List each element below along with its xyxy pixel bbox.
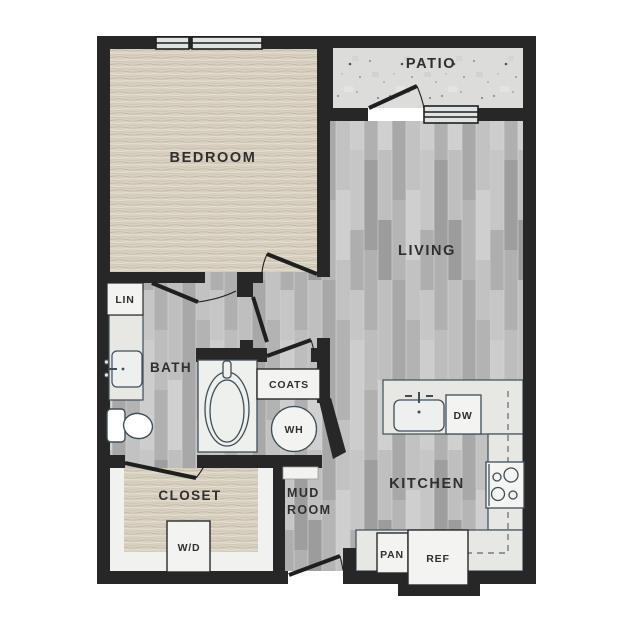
pan-label: PAN: [380, 549, 404, 561]
bath-vanity: [104, 315, 143, 400]
mud-room-label-line1: MUD: [287, 486, 320, 500]
bedroom-window-right: [192, 37, 262, 49]
floor-plan: BEDROOM PATIO LIVING KITCHEN BATH CLOSET…: [0, 0, 632, 632]
wh-closet-threshold: [283, 467, 318, 479]
ref-label: REF: [426, 553, 449, 565]
coats-label: COATS: [269, 379, 309, 391]
patio-label: PATIO: [406, 56, 456, 72]
mud-room-label-line2: ROOM: [287, 503, 332, 517]
bath-label: BATH: [150, 360, 192, 375]
lin-label: LIN: [115, 294, 134, 306]
stove-icon: [486, 462, 524, 508]
living-window: [424, 106, 478, 123]
wh-label: WH: [284, 424, 303, 436]
dw-label: DW: [453, 410, 472, 422]
living-label: LIVING: [398, 243, 456, 259]
closet-label: CLOSET: [158, 488, 221, 503]
bedroom-label: BEDROOM: [170, 150, 257, 166]
wd-label: W/D: [178, 542, 201, 554]
floor-plan-drawing: BEDROOM PATIO LIVING KITCHEN BATH CLOSET…: [0, 0, 632, 632]
bathtub-icon: [198, 360, 257, 452]
bedroom-window-left: [156, 37, 189, 49]
kitchen-label: KITCHEN: [389, 476, 465, 492]
